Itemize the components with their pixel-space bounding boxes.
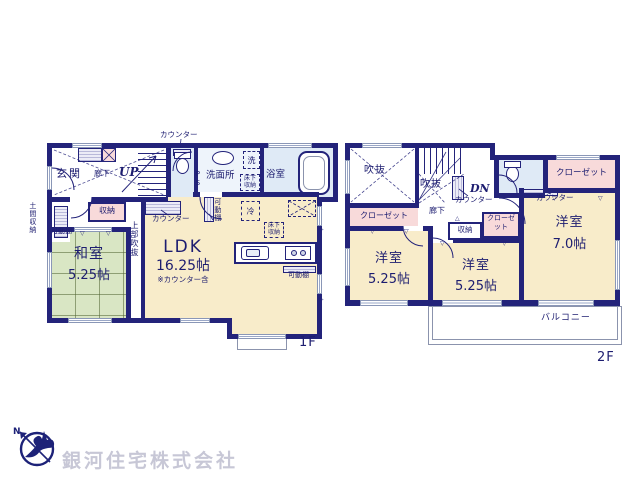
pipe-space-label: PS xyxy=(193,170,201,188)
vent-mark-icon: ▽ xyxy=(370,229,375,235)
wall-cabinet-dashed xyxy=(288,200,316,217)
bathroom-label: 浴室 xyxy=(266,170,285,181)
kitchen-sink-basin xyxy=(246,249,260,257)
porch-step xyxy=(237,339,287,350)
window xyxy=(317,206,322,226)
company-name: 銀河住宅株式会社 xyxy=(62,446,238,473)
wall xyxy=(333,143,338,202)
vent-mark-icon: ▽ xyxy=(440,241,445,247)
wall xyxy=(47,197,70,202)
counter-mid-shelf xyxy=(145,201,181,215)
floor1-label: 1F xyxy=(299,336,317,351)
stairs-down-label: DN xyxy=(470,183,490,195)
washbasin xyxy=(212,151,234,165)
closet-left-label: クローゼット xyxy=(350,212,418,221)
bedroom-mid-size: 5.25帖 xyxy=(433,280,519,295)
movable-shelf-pantry-label: 可動棚 xyxy=(213,198,221,222)
bedroom-right-size: 7.0帖 xyxy=(524,238,615,253)
bedroom-left-size: 5.25帖 xyxy=(350,273,428,288)
window xyxy=(238,334,286,339)
toilet-bowl-2f xyxy=(506,166,519,182)
underfloor-storage-1-label: 床下収納 xyxy=(243,176,257,189)
compass-n-label: N xyxy=(13,427,21,437)
wall xyxy=(141,197,145,318)
compass-arrowhead-icon xyxy=(20,432,27,439)
wall xyxy=(494,155,499,198)
vent-mark-icon: ▽ xyxy=(502,241,507,247)
bird-icon xyxy=(25,431,54,457)
window xyxy=(68,318,112,323)
window xyxy=(72,143,102,148)
counter-top-label: カウンター xyxy=(160,131,198,139)
balcony-door xyxy=(538,300,594,306)
vent-mark-icon: ▷ xyxy=(319,297,324,303)
kitchen-stove xyxy=(285,246,311,260)
vent-mark-icon: ▽ xyxy=(106,231,111,237)
window xyxy=(268,143,312,148)
vent-mark-icon: ▽ xyxy=(598,196,603,202)
window xyxy=(345,160,350,194)
washer-space: 洗 xyxy=(243,151,260,169)
closet-mid-label: クローゼット xyxy=(484,214,518,232)
window xyxy=(615,240,620,290)
ldk-size: 16.25帖 xyxy=(133,259,233,275)
balcony-label: バルコニー xyxy=(541,313,591,323)
fridge-label: 冷 xyxy=(247,206,255,217)
bedroom-mid-name: 洋室 xyxy=(433,259,519,274)
washer-label: 洗 xyxy=(248,155,256,166)
entrance-label: 玄関 xyxy=(56,168,82,180)
closet-right-label: クローゼット xyxy=(548,169,615,179)
washroom-label: 洗面所 xyxy=(206,171,235,182)
vent-mark-icon: ▽ xyxy=(150,197,155,203)
logo-circle-icon xyxy=(21,433,53,465)
movable-shelf-left-label: 可動棚 xyxy=(51,228,72,236)
vent-mark-icon: ▽ xyxy=(404,229,409,235)
wall xyxy=(317,197,338,202)
entrance-door xyxy=(47,166,52,190)
doma-storage-label: 土間収納 xyxy=(28,202,36,234)
storage-1f-label: 収納 xyxy=(88,207,126,216)
vent-mark-icon: ▽ xyxy=(80,231,85,237)
ldk-room-lower xyxy=(232,318,317,334)
wall xyxy=(345,203,419,208)
japanese-room-size: 5.25帖 xyxy=(52,269,126,284)
company-logo: N xyxy=(12,424,60,472)
window xyxy=(362,143,402,148)
ldk-note: ※カウンター含 xyxy=(133,276,233,284)
underfloor-storage-1: 床下収納 xyxy=(240,174,260,191)
storage-2f-label: 収納 xyxy=(448,226,482,234)
wall xyxy=(222,192,319,197)
shoe-shelf xyxy=(78,148,102,162)
vent-mark-icon: ▷ xyxy=(319,227,324,233)
bedroom-right-name: 洋室 xyxy=(524,216,615,231)
toilet-tank-2f xyxy=(504,161,521,168)
ldk-name: LDK xyxy=(133,238,233,257)
movable-shelf-right-label: 可動棚 xyxy=(288,272,309,280)
window xyxy=(556,155,600,160)
underfloor-storage-2: 床下収納 xyxy=(264,222,284,238)
wall xyxy=(92,197,168,202)
counter-mid-label: カウンター xyxy=(152,215,190,223)
void2-label: 吹抜 xyxy=(420,179,442,190)
balcony-door xyxy=(360,300,408,306)
stove-burner-icon xyxy=(300,250,306,256)
bathtub-inner xyxy=(303,156,325,190)
window xyxy=(180,318,210,323)
wall xyxy=(260,143,264,197)
vent-mark-icon: △ xyxy=(455,216,460,222)
stairs-up-label: UP xyxy=(119,166,139,179)
floorplan-canvas: 洗 床下収納 冷 床下収納 xyxy=(0,0,640,480)
void1-label: 吹抜 xyxy=(364,165,386,176)
japanese-room-name: 和室 xyxy=(52,247,126,263)
compass-needle-icon xyxy=(20,432,50,462)
toilet-tank-1f xyxy=(174,152,191,159)
window xyxy=(317,274,322,294)
hallway-2f-label: 廊下 xyxy=(429,207,445,216)
wall xyxy=(415,148,419,205)
hallway-1f-label: 廊下 xyxy=(94,170,110,179)
toilet-bowl-1f xyxy=(176,158,189,174)
stairs-1f xyxy=(138,148,166,197)
wall xyxy=(166,148,171,197)
wall xyxy=(453,238,519,243)
underfloor-storage-2-label: 床下収納 xyxy=(267,223,281,236)
stove-burner-icon xyxy=(291,250,297,256)
fridge-space: 冷 xyxy=(241,201,260,221)
stairs-2f-upper xyxy=(419,148,465,174)
floor2-label: 2F xyxy=(597,351,615,366)
bedroom-left-name: 洋室 xyxy=(350,252,428,267)
wall xyxy=(490,155,620,160)
balcony-door xyxy=(442,300,502,306)
counter1-label: カウンター xyxy=(455,196,493,204)
vent-mark-icon: ▽ xyxy=(552,196,557,202)
shoe-cabinet xyxy=(102,148,116,162)
